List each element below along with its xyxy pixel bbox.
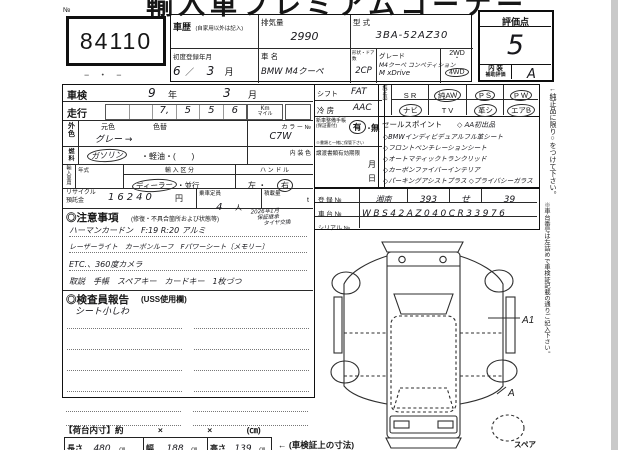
lot-number: 84110 bbox=[80, 28, 152, 55]
import-row: 輸入車用 年式 輸 入 区 分 ディーラー・並行 ハ ン ド ル 左 ・ 右 bbox=[63, 165, 313, 189]
rear-window-dashed bbox=[394, 388, 453, 408]
ac-row: 冷 房 AAC bbox=[315, 101, 382, 117]
length-cell: 長さ 480 ㎝ bbox=[64, 437, 144, 450]
inspector-finding: シート小しわ bbox=[75, 304, 129, 317]
car-name-value: BMW M4クーペ bbox=[261, 65, 348, 77]
color-change-label: 色替 bbox=[153, 122, 167, 132]
grade-line1: M4クーペ コンペティション bbox=[379, 60, 438, 69]
color-row: 外色 元色 色替 グレー → カ ラ ー № C7W bbox=[63, 121, 313, 147]
left-sill bbox=[334, 297, 342, 353]
load-unit: t bbox=[262, 197, 313, 204]
ac-value: AAC bbox=[353, 103, 372, 113]
drive-4wd: 4WD bbox=[445, 67, 469, 77]
lot-no-label: № bbox=[63, 7, 71, 14]
equip-airbag: エアB bbox=[507, 103, 536, 117]
wheel-front-right bbox=[485, 270, 513, 292]
mileage-row: 走行 7, 5 5 6 Km マイル bbox=[63, 102, 313, 121]
capacity-label: 乗車定員 bbox=[197, 189, 261, 197]
bed-unit: (㎝) bbox=[247, 425, 261, 435]
first-reg-slash: ／ bbox=[185, 67, 194, 77]
transfer-day: 日 bbox=[368, 173, 376, 184]
equip-sr: S R bbox=[404, 91, 417, 100]
notes-section: ◎注意事項 (修復・不具合箇所および状態等) 2026年1月 保証継承 タイヤ交… bbox=[63, 209, 313, 291]
shaken-month: 3 bbox=[223, 86, 231, 100]
shaken-year-suffix: 年 bbox=[168, 88, 177, 101]
year-type-label: 年式 bbox=[78, 166, 89, 174]
note-line: ETC.、360度カメラ bbox=[69, 259, 307, 271]
sales-point: ◇BMWインディビデュアルフル革シート bbox=[383, 131, 503, 141]
history-cell: 車歴 (自家用以外は記入) bbox=[171, 15, 259, 49]
sales-points-label: セールスポイント bbox=[382, 119, 442, 130]
grade-cell: グレード M4クーペ コンペティション M xDrive bbox=[377, 49, 441, 83]
exterior-color-label: 外色 bbox=[66, 122, 76, 138]
score-label: 評価点 bbox=[502, 17, 529, 27]
book-note: ※書類と一緒に保管下さい bbox=[316, 140, 364, 146]
orig-color-label: 元色 bbox=[101, 122, 115, 132]
inspector-section: ◎検査員報告 (USS使用欄) シート小しわ bbox=[63, 291, 313, 396]
width-value: 188 bbox=[166, 444, 183, 450]
registration-table: 登 録 № 湘南 393 せ 39 車 台 № WBS42AZ040CR3397… bbox=[315, 188, 540, 230]
bed-x2: × bbox=[207, 425, 212, 435]
cabin-dashed bbox=[391, 316, 456, 412]
spare-label: スペア bbox=[514, 440, 536, 449]
bed-x1: × bbox=[158, 425, 163, 435]
height-cell: 高さ 139 ㎝ bbox=[208, 437, 272, 450]
height-value: 139 bbox=[234, 444, 251, 450]
serial-no-label: シリアル № bbox=[318, 226, 350, 232]
model-code-label: 型 式 bbox=[353, 17, 471, 28]
genuine-parts-label: 純正品 bbox=[382, 85, 389, 100]
score-label-strip: 評価点 bbox=[480, 12, 551, 27]
recycle-row: リサイクル 預託金 16240 円 乗車定員 4 人 積載量 t bbox=[63, 189, 313, 209]
sales-point: ◇パーキングアシストプラス ◇プライバシーガラス bbox=[383, 175, 533, 185]
grade-line2: M xDrive bbox=[379, 69, 438, 77]
width-cell: 幅 188 ㎝ bbox=[144, 437, 208, 450]
sales-point: ◇フロントベンチレーションシート bbox=[383, 142, 487, 152]
handle-label: ハ ン ド ル bbox=[236, 165, 313, 175]
first-reg-cell: 初度登録年月 6 ／ 3 月 bbox=[171, 49, 259, 83]
height-label: 高さ bbox=[210, 444, 226, 450]
interior-value-cell: A bbox=[512, 64, 551, 79]
service-book-row: 新車整備手帳 (保証書付) 有 ・ 無 ※書類と一緒に保管下さい bbox=[315, 117, 382, 147]
spare-tire-circle bbox=[492, 415, 524, 441]
middle-column: シフト FAT 冷 房 AAC 新車整備手帳 (保証書付) 有 ・ 無 ※書類と… bbox=[315, 84, 385, 188]
model-code-cell: 型 式 3BA-52AZ30 bbox=[351, 15, 473, 49]
left-column: 車検 9 年 3 月 走行 7, 5 5 6 Km マイル 外色 bbox=[62, 84, 315, 398]
mileage-extra-cell bbox=[285, 104, 311, 120]
first-reg-month: 3 bbox=[207, 64, 215, 78]
lot-dashes: − ・ − bbox=[84, 68, 122, 81]
transfer-docs-row: 譲渡書類有効期限 月 日 bbox=[315, 147, 382, 187]
drive-sep: ・ bbox=[442, 57, 472, 61]
shape-cell: 形状・ドア数 2CP bbox=[351, 49, 377, 83]
scan-edge bbox=[611, 0, 618, 450]
extra-dotted-row bbox=[66, 402, 308, 412]
history-label: 車歴 bbox=[173, 22, 191, 32]
rear-bumper-flap bbox=[386, 438, 461, 448]
lot-number-box: 84110 bbox=[66, 16, 166, 66]
rear-panel bbox=[390, 416, 457, 433]
import-class-label: 輸 入 区 分 bbox=[124, 165, 235, 175]
margin-note-genuine: ←純正品に限り○をつけて下さい。 bbox=[547, 86, 557, 216]
mileage-unit: Km マイル bbox=[247, 104, 283, 120]
shift-label: シフト bbox=[317, 89, 338, 99]
equip-tv: T V bbox=[442, 106, 454, 115]
shaken-month-suffix: 月 bbox=[248, 88, 257, 101]
recycle-unit: 円 bbox=[175, 193, 183, 204]
note-line: ハーマンカードン F:19 R:20 アルミ bbox=[69, 225, 307, 237]
shape-value: 2CP bbox=[352, 66, 375, 76]
first-reg-label: 初度登録年月 bbox=[173, 51, 256, 61]
damage-mark-a1: A1 bbox=[521, 315, 534, 326]
score-value-area: 5 bbox=[480, 27, 551, 64]
auction-sheet: 輸入車プレミアムコーナー № 84110 − ・ − 車歴 (自家用以外は記入)… bbox=[0, 0, 623, 450]
drive-cell: 2WD ・ 4WD bbox=[441, 49, 473, 83]
notes-title: ◎注意事項 bbox=[66, 210, 119, 225]
wheel-rear-right bbox=[487, 360, 517, 382]
color-no-label: カ ラ ー № bbox=[248, 121, 313, 131]
odometer-cells: 7, 5 5 6 bbox=[105, 104, 247, 120]
car-name-label: 車 名 bbox=[261, 51, 348, 62]
transfer-month: 月 bbox=[368, 159, 376, 170]
shift-value: FAT bbox=[351, 87, 367, 97]
width-label: 幅 bbox=[146, 444, 154, 450]
interior-label-cell: 内 装 補助評価 bbox=[480, 64, 512, 79]
grade-label: グレード bbox=[379, 50, 438, 60]
equip-navi: ナビ bbox=[398, 103, 422, 117]
sales-point: ◇カーボンファイバーインテリア bbox=[383, 164, 480, 174]
sales-point: ◇オートマティックトランクリッド bbox=[383, 153, 487, 163]
car-name-cell: 車 名 BMW M4クーペ bbox=[259, 49, 351, 83]
displacement-value: 2990 bbox=[261, 30, 348, 43]
color-no-value: C7W bbox=[248, 131, 313, 142]
front-bumper-flap bbox=[382, 242, 463, 252]
interior-value: A bbox=[527, 67, 536, 82]
service-book-label-2: (保証書付) bbox=[316, 124, 346, 129]
fuel-selected: ガソリン bbox=[87, 148, 128, 163]
right-sill bbox=[506, 297, 515, 353]
first-reg-year: 6 bbox=[173, 64, 181, 78]
notes-subtitle: (修復・不具合箇所および状態等) bbox=[131, 214, 219, 223]
dimension-note: ← (車検証上の寸法) bbox=[278, 439, 354, 450]
model-code-value: 3BA-52AZ30 bbox=[353, 30, 471, 41]
recycle-label-2: 預託金 bbox=[66, 198, 96, 204]
interior-color-label: 内 装 色 bbox=[248, 147, 313, 157]
mileage-label: 走行 bbox=[67, 105, 87, 120]
shaken-label: 車検 bbox=[67, 87, 87, 102]
first-reg-month-suffix: 月 bbox=[225, 67, 234, 77]
sales-point: ◇ AA初出品 bbox=[457, 120, 495, 130]
header-table: 車歴 (自家用以外は記入) 排気量 2990 型 式 3BA-52AZ30 初度… bbox=[170, 14, 472, 82]
exterior-color-value: グレー → bbox=[95, 132, 132, 145]
inspector-subtitle: (USS使用欄) bbox=[141, 294, 187, 305]
book-yes-option: 有 bbox=[349, 120, 366, 135]
damage-mark-a: A bbox=[507, 388, 515, 399]
equip-leather: 革シ bbox=[473, 103, 497, 117]
windshield bbox=[394, 294, 453, 314]
fuel-options-rest: ・軽油・( ) bbox=[141, 151, 194, 162]
recycle-value: 16240 bbox=[108, 192, 155, 203]
wheel-rear-left bbox=[331, 361, 359, 383]
recycle-label-1: リサイクル bbox=[66, 190, 96, 196]
note-line: レーザーライト カーボンルーフ Fパワーシート〔メモリー〕 bbox=[69, 242, 307, 253]
bed-label: 【荷台内寸】約 bbox=[64, 425, 124, 435]
damage-diagram: A1 A スペア bbox=[330, 238, 558, 450]
margin-note-chassis: ※車台番号は左詰めで車検証記載の通りご記入下さい。 bbox=[542, 202, 551, 402]
shaken-row: 車検 9 年 3 月 bbox=[63, 85, 313, 102]
transfer-label: 譲渡書類有効期限 bbox=[316, 149, 360, 157]
score-value: 5 bbox=[507, 30, 524, 61]
displacement-cell: 排気量 2990 bbox=[259, 15, 351, 49]
bed-dimension-line: 【荷台内寸】約 × × (㎝) bbox=[64, 424, 261, 436]
interior-label-2: 補助評価 bbox=[480, 73, 511, 78]
history-note: (自家用以外は記入) bbox=[195, 26, 243, 32]
fuel-row: 燃料 ガソリン ・軽油・( ) 内 装 色 bbox=[63, 147, 313, 165]
car-body-outline bbox=[387, 252, 460, 438]
load-label: 積載量 bbox=[262, 189, 313, 197]
shape-label: 形状・ドア数 bbox=[352, 50, 375, 62]
displacement-label: 排気量 bbox=[261, 17, 348, 28]
shift-row: シフト FAT bbox=[315, 85, 382, 101]
wheel-front-left bbox=[332, 272, 360, 294]
equipment-grid: 純正品 S R 純AW P S P W ナビ T V 革シ エアB bbox=[378, 84, 540, 117]
fuel-label: 燃料 bbox=[66, 148, 75, 162]
import-use-label: 輸入車用 bbox=[66, 165, 73, 185]
sales-points-box: セールスポイント ◇ AA初出品 ◇BMWインディビデュアルフル革シート ◇フロ… bbox=[378, 117, 540, 188]
note-line: 取説 手帳 スペアキー カードキー 1枚づつ bbox=[69, 276, 307, 287]
shaken-year: 9 bbox=[148, 86, 156, 100]
ac-label: 冷 房 bbox=[317, 105, 334, 116]
score-box: 評価点 5 内 装 補助評価 A bbox=[478, 10, 554, 82]
length-value: 480 bbox=[93, 444, 110, 450]
length-label: 長さ bbox=[67, 444, 83, 450]
